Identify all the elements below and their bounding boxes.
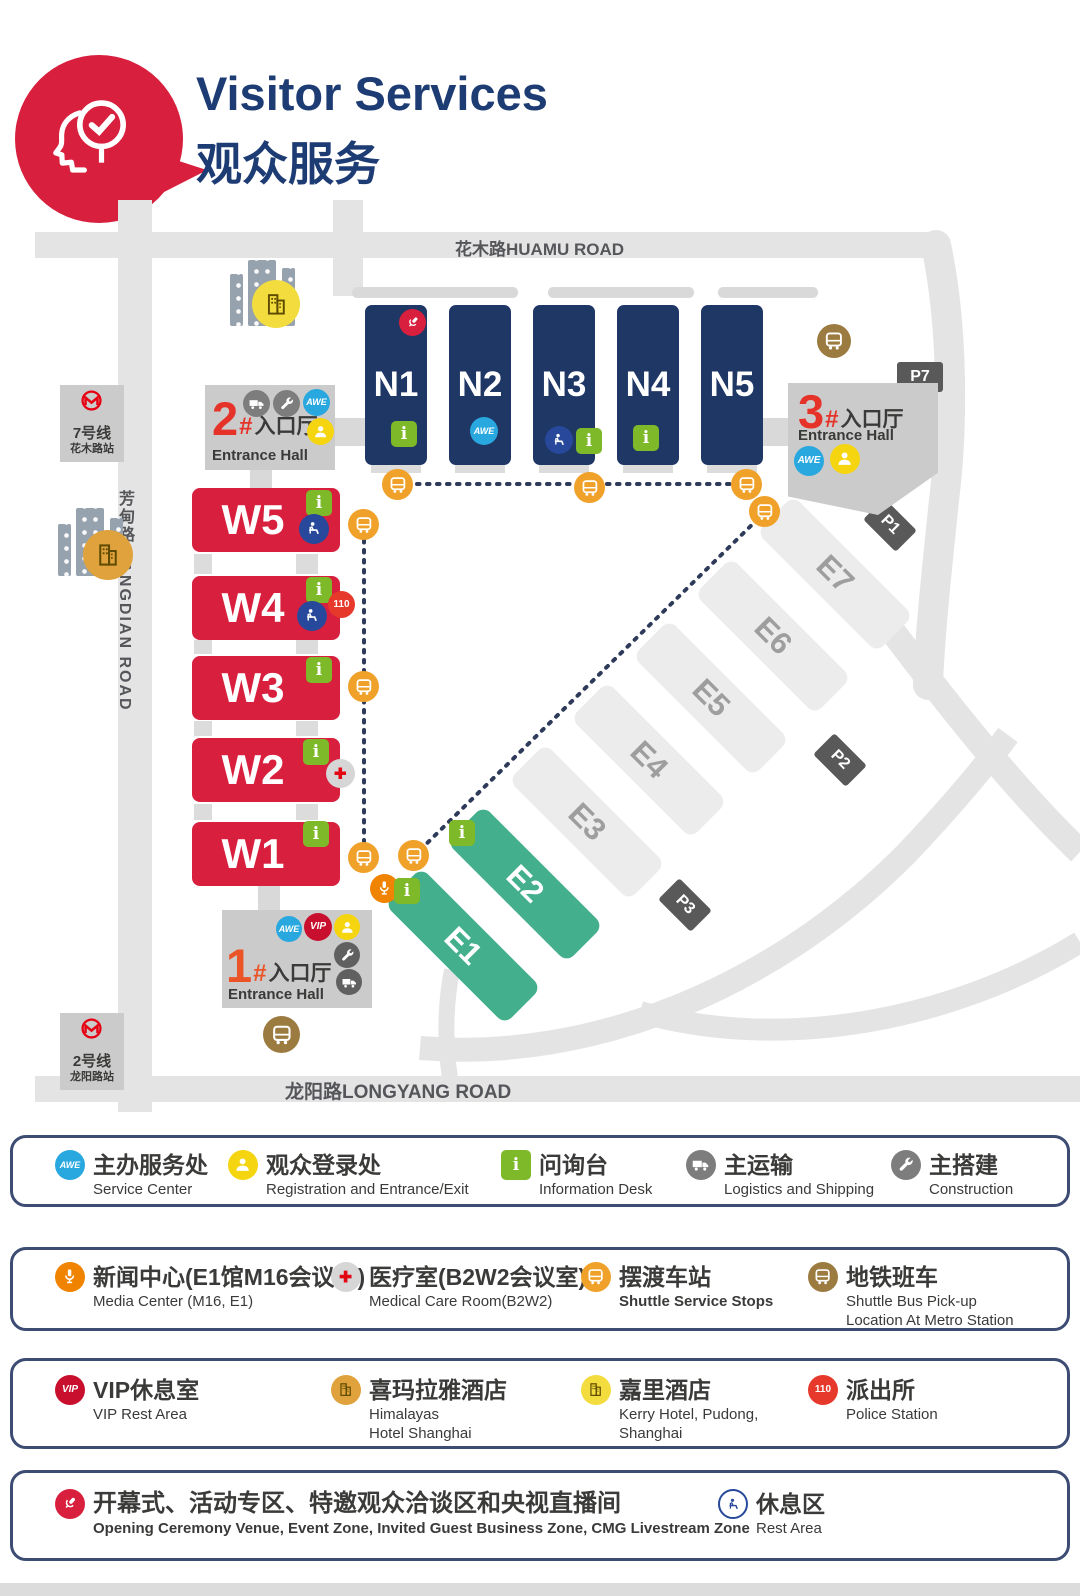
legend-box-1: AWE 主办服务处Service Center 观众登录处Registratio… [10, 1135, 1070, 1207]
legend-item-logistics: 主运输Logistics and Shipping [686, 1150, 874, 1199]
registration-icon [228, 1150, 258, 1180]
legend-item-shuttle-stop: 摆渡车站Shuttle Service Stops [581, 1262, 773, 1311]
head-clock-icon [43, 89, 147, 193]
legend-item-media-center: 新闻中心(E1馆M16会议室)Media Center (M16, E1) [55, 1262, 365, 1311]
legend-item-himalayas-hotel: 喜玛拉雅酒店Himalayas Hotel Shanghai [331, 1375, 507, 1443]
himalayas-hotel-icon [83, 530, 133, 580]
metro-station-label: 花木路站 [60, 443, 124, 456]
legend-item-service-center: AWE 主办服务处Service Center [55, 1150, 208, 1199]
bottom-edge [0, 1583, 1080, 1596]
information-desk-icon: i [303, 739, 329, 765]
logistics-icon [686, 1150, 716, 1180]
entrance-1-number: 1 [226, 942, 252, 989]
metro-station-line2: 2号线 龙阳路站 [60, 1013, 124, 1090]
shuttle-stop-icon [382, 469, 413, 500]
legend-box-3: VIP VIP休息室VIP Rest Area 喜玛拉雅酒店Himalayas … [10, 1358, 1070, 1449]
legend-item-construction: 主搭建Construction [891, 1150, 1013, 1199]
shuttle-stop-icon [348, 509, 379, 540]
legend-item-police: 110 派出所Police Station [808, 1375, 938, 1424]
awe-service-icon: AWE [303, 389, 330, 416]
medical-room-icon [331, 1262, 361, 1292]
opening-ceremony-icon [55, 1489, 85, 1519]
legend-item-information-desk: i 问询台Information Desk [501, 1150, 652, 1199]
page-subtitle: 观众服务 [196, 128, 380, 194]
awe-service-icon: AWE [276, 916, 302, 942]
kerry-hotel-icon [581, 1375, 611, 1405]
metro-shuttle-icon [808, 1262, 838, 1292]
metro-station-line7: 7号线 花木路站 [60, 385, 124, 462]
legend-box-2: 新闻中心(E1馆M16会议室)Media Center (M16, E1) 医疗… [10, 1247, 1070, 1331]
rest-area-icon [545, 426, 573, 454]
legend-item-medical: 医疗室(B2W2会议室)Medical Care Room(B2W2) [331, 1262, 586, 1311]
awe-service-icon: AWE [470, 417, 498, 445]
registration-icon [307, 418, 334, 445]
legend-item-rest-area: 休息区Rest Area [718, 1489, 825, 1538]
registration-icon [830, 444, 860, 474]
metro-line-label: 2号线 [60, 1053, 124, 1071]
legend-item-metro-shuttle: 地铁班车Shuttle Bus Pick-up Location At Metr… [808, 1262, 1014, 1330]
rest-area-icon [297, 601, 327, 631]
vip-icon: VIP [55, 1375, 85, 1405]
police-station-icon: 110 [328, 591, 355, 618]
building-himalayas-hotel [55, 500, 135, 580]
shuttle-stop-icon [581, 1262, 611, 1292]
legend-item-kerry-hotel: 嘉里酒店Kerry Hotel, Pudong, Shanghai [581, 1375, 758, 1443]
building-kerry-hotel [230, 258, 310, 332]
opening-ceremony-icon [399, 309, 426, 336]
shuttle-stop-icon [749, 496, 780, 527]
media-center-icon [55, 1262, 85, 1292]
rest-area-icon [718, 1489, 748, 1519]
information-desk-icon: i [303, 821, 329, 847]
shuttle-stop-icon [348, 842, 379, 873]
construction-icon [273, 390, 300, 417]
legend-item-registration: 观众登录处Registration and Entrance/Exit [228, 1150, 469, 1199]
logistics-icon [336, 969, 362, 995]
shuttle-stop-icon [574, 472, 605, 503]
legend-item-opening-ceremony: 开幕式、活动专区、特邀观众洽谈区和央视直播间Opening Ceremony V… [55, 1489, 750, 1538]
entrance-hall-2: 2 # 入口厅 Entrance Hall AWE [205, 385, 335, 470]
entrance-hall-1: 1 # 入口厅 Entrance Hall AWE VIP [222, 910, 372, 1008]
police-station-icon: 110 [808, 1375, 838, 1405]
legend-box-4: 开幕式、活动专区、特邀观众洽谈区和央视直播间Opening Ceremony V… [10, 1470, 1070, 1561]
information-desk-icon: i [576, 428, 602, 454]
road-label-longyang: 龙阳路LONGYANG ROAD [285, 1077, 511, 1104]
metro-shuttle-icon [817, 324, 851, 358]
registration-icon [334, 914, 360, 940]
metro-station-label: 龙阳路站 [60, 1071, 124, 1084]
logistics-icon [243, 390, 270, 417]
entrance-2-number: 2 [212, 395, 238, 442]
road-label-huamu: 花木路HUAMU ROAD [455, 235, 624, 260]
metro-line-label: 7号线 [60, 425, 124, 443]
vip-icon: VIP [304, 913, 332, 941]
information-desk-icon: i [391, 421, 417, 447]
metro-logo-icon [74, 1017, 110, 1053]
awe-service-icon: AWE [794, 446, 824, 476]
information-desk-icon: i [306, 490, 332, 516]
visitor-services-map-page: Visitor Services 观众服务 [0, 0, 1080, 1596]
page-title: Visitor Services [196, 66, 548, 121]
construction-icon [334, 942, 360, 968]
information-desk-icon: i [306, 657, 332, 683]
medical-room-icon [326, 759, 355, 788]
rest-area-icon [299, 514, 329, 544]
hall-n5: N5 [701, 305, 763, 465]
information-desk-icon: i [501, 1150, 531, 1180]
legend-item-vip: VIP VIP休息室VIP Rest Area [55, 1375, 199, 1424]
shuttle-stop-icon [731, 469, 762, 500]
information-desk-icon: i [633, 425, 659, 451]
header-bubble [15, 55, 183, 223]
kerry-hotel-icon [252, 280, 300, 328]
shuttle-stop-icon [348, 671, 379, 702]
information-desk-icon: i [449, 820, 475, 846]
venue-map: 花木路HUAMU ROAD 龙阳路LONGYANG ROAD 芳甸路 FANGD… [0, 200, 1080, 1112]
metro-logo-icon [74, 389, 110, 425]
shuttle-stop-icon [398, 840, 429, 871]
himalayas-hotel-icon [331, 1375, 361, 1405]
information-desk-icon: i [394, 878, 420, 904]
metro-shuttle-icon [263, 1016, 300, 1053]
awe-service-icon: AWE [55, 1150, 85, 1180]
construction-icon [891, 1150, 921, 1180]
